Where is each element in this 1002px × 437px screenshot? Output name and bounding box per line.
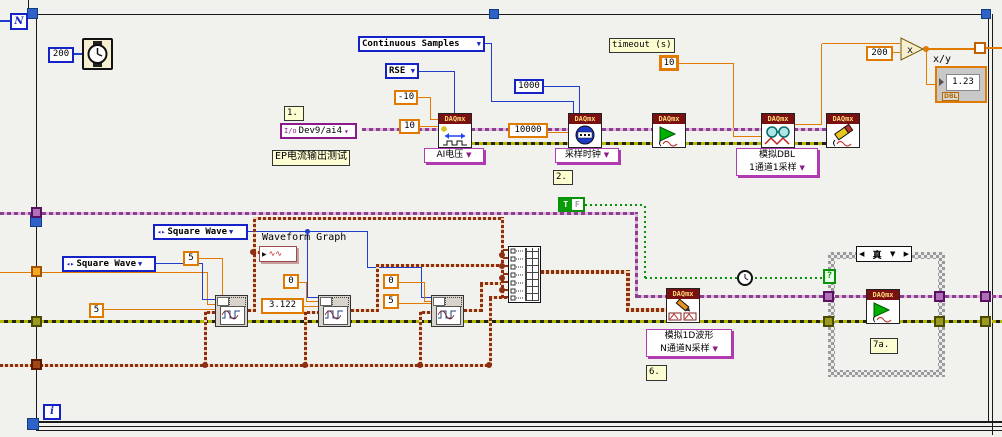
daqmx-header: DAQmx [827, 114, 859, 124]
selection-handle[interactable] [981, 9, 991, 19]
wire [74, 53, 82, 55]
start-task-icon [867, 300, 899, 323]
wire [307, 297, 318, 298]
true-constant[interactable]: T F [558, 197, 585, 212]
wire [424, 282, 425, 302]
wait-ms-constant[interactable]: 200 [48, 47, 74, 63]
xy-indicator-label[interactable]: x/y [933, 54, 951, 65]
case-selector-terminal[interactable]: ? [823, 269, 836, 284]
boolean-wire [645, 277, 826, 279]
amplitude-constant-2[interactable]: 5 [183, 251, 199, 266]
task-wire [0, 212, 638, 215]
task-wire [835, 295, 866, 298]
daqmx-header: DAQmx [653, 114, 685, 124]
error-wire [794, 142, 826, 145]
wire-junction [499, 263, 505, 269]
error-wire [945, 320, 982, 323]
terminal-arrow-icon: ▶ [262, 251, 267, 258]
timing-icon [569, 124, 601, 147]
tunnel-loop-task-out [980, 291, 991, 302]
waveform-wire [253, 217, 256, 312]
wire [491, 43, 492, 102]
indicator-arrow-icon [939, 78, 944, 86]
waveform-array-wire [626, 308, 666, 312]
multiply-function[interactable]: x [900, 37, 925, 61]
waveform-preview-icon [220, 306, 245, 325]
wire [104, 309, 215, 310]
waveform-wire [204, 311, 207, 365]
error-wire [602, 142, 652, 145]
task-wire [900, 295, 935, 298]
waveform-array-wire [626, 270, 630, 311]
wire [222, 258, 223, 295]
chevron-down-icon[interactable]: ▼ [138, 260, 142, 268]
tunnel-task-left [31, 207, 42, 218]
wire [430, 119, 438, 120]
waveform-wire [480, 282, 483, 312]
wire [306, 301, 318, 302]
wire [733, 63, 734, 137]
frequency-constant[interactable]: 3.122 [261, 298, 304, 314]
error-wire [700, 320, 828, 323]
read-selector[interactable]: 模拟DBL 1通道1采样 ▼ [736, 148, 818, 176]
wire-junction [499, 275, 505, 281]
timeout-label[interactable]: timeout (s) [609, 38, 675, 53]
wire [430, 97, 431, 120]
wire [306, 282, 307, 302]
tunnel-case-error-in [823, 316, 834, 327]
daqmx-start-task-vi-case[interactable]: DAQmx [866, 289, 900, 324]
chevron-down-icon[interactable]: ▼ [712, 345, 717, 353]
wire [926, 84, 935, 85]
xy-type: DBL [944, 93, 957, 100]
wire [822, 43, 900, 44]
watch-icon [84, 40, 111, 68]
chevron-down-icon[interactable]: ▼ [890, 250, 895, 258]
loop-border-top [28, 14, 990, 15]
waveform-wire [422, 311, 431, 314]
daqmx-header: DAQmx [667, 289, 699, 299]
build-array-inputs-icon [509, 247, 526, 302]
rate-constant[interactable]: 10000 [508, 123, 548, 138]
task-wire [700, 295, 828, 298]
loop-count-label: N [14, 16, 23, 27]
wire [398, 282, 425, 283]
tunnel-case-error-out [934, 316, 945, 327]
selector-value-line2: N通道N采样 [660, 344, 709, 354]
task-wire [635, 212, 638, 298]
wire [821, 44, 822, 125]
wire-junction [202, 362, 208, 368]
write-icon [667, 299, 699, 322]
loop-iteration-terminal[interactable]: i [43, 404, 61, 420]
samples-constant[interactable]: 1000 [514, 79, 544, 94]
wire [548, 132, 568, 133]
wire [303, 306, 318, 307]
wire-junction [250, 249, 256, 255]
daqmx-timing-vi[interactable]: DAQmx [568, 113, 602, 148]
build-array-function[interactable] [508, 246, 541, 303]
waveform-wire [304, 311, 307, 365]
amplitude-constant-3[interactable]: 5 [383, 294, 399, 309]
vi-tab-icon [433, 297, 445, 306]
chevron-down-icon[interactable]: ▼ [604, 151, 609, 159]
loop-border-right-2 [992, 14, 993, 435]
wire [199, 258, 223, 259]
boolean-wire [585, 204, 645, 206]
loop-border-bottom-3 [36, 430, 1002, 431]
amplitude-constant-1[interactable]: 5 [89, 303, 104, 318]
chevron-down-icon[interactable]: ▼ [229, 228, 233, 236]
waveform-wire [253, 217, 502, 220]
daqmx-write-vi[interactable]: DAQmx [666, 288, 700, 323]
false-value: F [572, 199, 584, 210]
write-selector[interactable]: 模拟1D波形 N通道N采样 ▼ [646, 329, 732, 357]
waveform-preview-icon [436, 306, 461, 325]
wire [544, 86, 580, 87]
daqmx-read-vi[interactable]: DAQmx [761, 113, 795, 148]
xy-indicator[interactable]: 1.23 DBL [935, 66, 987, 103]
wire [207, 272, 208, 305]
wire [419, 71, 455, 72]
xy-value: 1.23 [952, 77, 974, 87]
wire [986, 47, 1002, 49]
waveform-graph-label[interactable]: Waveform Graph [262, 232, 346, 243]
labview-block-diagram: ◀ 真 ▼ ▶ ? 7a. N i 200 1. I/o Dev9/ai4 ▾ [0, 0, 1002, 437]
selection-handle[interactable] [27, 418, 39, 430]
selection-handle[interactable] [27, 8, 38, 19]
tunnel-loop-data-out [974, 42, 986, 54]
input-config-ring-constant[interactable]: RSE ▼ [385, 63, 419, 79]
tunnel-case-task-in [823, 291, 834, 302]
error-wire [685, 142, 761, 145]
task-wire [602, 128, 652, 131]
ring-arrows-icon: ◂▸ [66, 260, 74, 268]
selector-value: 采样时钟 [565, 150, 601, 160]
tunnel-error-left [31, 316, 42, 327]
ring-value: RSE [389, 66, 405, 76]
io-icon: I/o [284, 127, 297, 135]
channel-name: Dev9/ai4 [299, 126, 342, 136]
true-value: T [560, 199, 572, 210]
wire [420, 126, 438, 127]
sample-mode-ring-constant[interactable]: Continuous Samples ▼ [358, 36, 485, 52]
task-wire [685, 128, 761, 131]
error-wire [471, 142, 568, 145]
offset-constant-1[interactable]: 0 [283, 274, 299, 289]
loop-iteration-label: i [50, 406, 54, 417]
selector-value-line1: 模拟DBL [759, 150, 795, 160]
wire [0, 20, 10, 22]
chevron-down-icon[interactable]: ▼ [411, 67, 415, 75]
error-wire [992, 320, 1002, 323]
tunnel-case-task-out [934, 291, 945, 302]
chevron-down-icon[interactable]: ▼ [477, 40, 481, 48]
wire [207, 304, 215, 305]
wire [367, 231, 368, 268]
loop-border-bottom [36, 421, 1002, 423]
wire-junction [302, 362, 308, 368]
min-constant[interactable]: -10 [394, 90, 418, 105]
wire [579, 86, 580, 114]
waveform-wire [376, 264, 379, 312]
wire [421, 297, 431, 298]
vi-tab-icon [320, 297, 332, 306]
waveform-graph-terminal[interactable]: ▶ ∿∿ [259, 246, 297, 262]
loop-border-right [988, 14, 989, 422]
daqmx-header: DAQmx [867, 290, 899, 300]
offset-constant-2[interactable]: 0 [383, 274, 399, 289]
selector-value: AI电压 [436, 150, 463, 160]
waveform-wire [419, 311, 422, 365]
wire [202, 263, 203, 300]
waveform-wire [248, 309, 256, 312]
waveform-wire [376, 264, 502, 267]
note-label-2[interactable]: 2. [553, 170, 573, 185]
wire [733, 136, 761, 137]
wait-clock-icon[interactable] [737, 270, 753, 286]
waveform-wire [351, 309, 378, 312]
note-label-7a[interactable]: 7a. [870, 338, 898, 354]
daqmx-header: DAQmx [439, 114, 471, 124]
chevron-down-icon[interactable]: ▼ [799, 164, 804, 172]
daqmx-start-task-vi[interactable]: DAQmx [652, 113, 686, 148]
waveform-preview-icon [323, 306, 348, 325]
wait-ms-function[interactable] [82, 38, 113, 70]
create-channel-icon [439, 124, 471, 147]
selector-value-line1: 模拟1D波形 [665, 331, 714, 341]
test-name-label[interactable]: EP电流输出测试 [272, 150, 350, 166]
selection-handle[interactable] [489, 9, 499, 19]
read-icon [762, 124, 794, 147]
task-wire [794, 128, 826, 131]
case-selector-label[interactable]: ◀ 真 ▼ ▶ [856, 246, 912, 262]
wire [454, 71, 455, 114]
chevron-down-icon[interactable]: ▼ [466, 151, 471, 159]
selector-value-line2: 1通道1采样 [749, 163, 796, 173]
waveform-array-wire [541, 270, 630, 274]
wire [398, 303, 431, 304]
waveform-wire [207, 311, 215, 314]
chevron-down-icon[interactable]: ▾ [344, 127, 349, 136]
boolean-wire [644, 204, 646, 278]
ring-value: Square Wave [167, 227, 227, 237]
physical-channel-constant[interactable]: I/o Dev9/ai4 ▾ [280, 123, 357, 139]
case-prev-icon[interactable]: ◀ [859, 250, 864, 258]
tunnel-waveform-left [31, 359, 42, 370]
xy-value-box: 1.23 [946, 74, 980, 91]
ring-value: Square Wave [76, 259, 136, 269]
timeout-constant[interactable]: 10 [659, 55, 679, 71]
basic-function-generator-vi-3[interactable] [431, 295, 464, 327]
wire [424, 301, 431, 302]
basic-function-generator-vi-1[interactable] [215, 295, 248, 327]
wire-junction [499, 287, 505, 293]
waveform-icon: ∿∿ [269, 250, 282, 258]
question-icon: ? [827, 271, 832, 281]
daqmx-clear-task-vi[interactable]: DAQmx [826, 113, 860, 148]
daqmx-header: DAQmx [569, 114, 601, 124]
multiply-icon: x [900, 37, 925, 61]
scale-constant[interactable]: 200 [866, 46, 893, 61]
daqmx-create-channel-vi[interactable]: DAQmx [438, 113, 472, 148]
case-next-icon[interactable]: ▶ [904, 250, 909, 258]
wire [893, 52, 900, 53]
wire-junction [486, 362, 492, 368]
wire [202, 299, 215, 300]
waveform-wire [307, 311, 318, 314]
clear-task-icon [827, 124, 859, 147]
basic-function-generator-vi-2[interactable] [318, 295, 351, 327]
ring-arrows-icon: ◂▸ [157, 228, 165, 236]
wire-junction [499, 252, 505, 258]
daqmx-header: DAQmx [762, 114, 794, 124]
tunnel-number-left [31, 266, 42, 277]
wire [794, 124, 822, 125]
wire [491, 101, 574, 102]
wire [679, 63, 733, 64]
max-constant[interactable]: 10 [399, 119, 420, 134]
start-task-icon [653, 124, 685, 147]
svg-text:x: x [907, 45, 913, 56]
xy-type-tag: DBL [942, 92, 959, 101]
timing-selector[interactable]: 采样时钟 ▼ [555, 148, 619, 163]
ring-value: Continuous Samples [362, 39, 460, 49]
wire [926, 48, 927, 85]
wave-type-ring-1[interactable]: ◂▸ Square Wave ▼ [62, 256, 156, 272]
vi-tab-icon [217, 297, 229, 306]
wave-type-ring-2[interactable]: ◂▸ Square Wave ▼ [153, 224, 248, 240]
waveform-wire [489, 297, 492, 366]
loop-count-terminal[interactable]: N [10, 13, 28, 30]
wire [924, 48, 974, 50]
tunnel-loop-error-out [980, 316, 991, 327]
create-channel-selector[interactable]: AI电压 ▼ [424, 148, 484, 163]
case-value: 真 [873, 248, 882, 261]
wire-junction [417, 362, 423, 368]
task-wire [992, 295, 1002, 298]
note-label-6[interactable]: 6. [646, 365, 667, 381]
array-grid [525, 248, 539, 301]
note-label-1[interactable]: 1. [284, 106, 304, 121]
task-wire [945, 295, 982, 298]
loop-border-bottom-2 [36, 426, 1002, 427]
task-wire [637, 295, 666, 298]
